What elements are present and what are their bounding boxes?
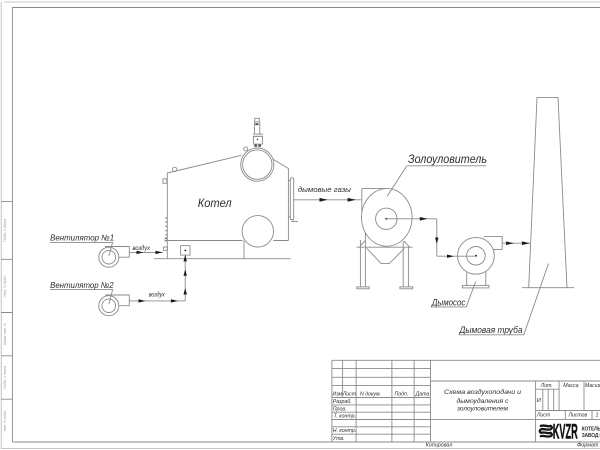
svg-text:Формат А3: Формат А3	[577, 443, 600, 449]
svg-text:КОТЕЛЬНЫЙ: КОТЕЛЬНЫЙ	[582, 425, 600, 433]
svg-text:Масса: Масса	[563, 383, 578, 389]
svg-text:Копировал: Копировал	[426, 443, 453, 449]
svg-text:Вентилятор №1: Вентилятор №1	[50, 233, 114, 243]
svg-text:Листов: Листов	[567, 413, 587, 419]
svg-text:Н. контр.: Н. контр.	[333, 428, 356, 434]
svg-text:Изм: Изм	[332, 392, 342, 398]
svg-text:N докум.: N докум.	[360, 392, 381, 398]
svg-text:дымовые газы: дымовые газы	[298, 185, 352, 194]
svg-text:Инв. N дубл.: Инв. N дубл.	[3, 275, 7, 296]
svg-text:Инв. N подл.: Инв. N подл.	[3, 410, 7, 432]
svg-text:Пров.: Пров.	[333, 406, 347, 412]
svg-text:дымоудаления с: дымоудаления с	[457, 397, 510, 405]
svg-text:Схема воздухоподачи и: Схема воздухоподачи и	[444, 388, 521, 396]
svg-text:Взам. инв. N: Взам. инв. N	[3, 323, 7, 345]
svg-text:Подп. и дата: Подп. и дата	[3, 366, 7, 389]
svg-text:Вентилятор №2: Вентилятор №2	[50, 280, 114, 290]
svg-text:Лист: Лист	[536, 413, 551, 419]
svg-text:Золоуловитель: Золоуловитель	[408, 154, 487, 166]
svg-text:Дымовая труба: Дымовая труба	[459, 325, 523, 335]
svg-text:Утв.: Утв.	[333, 436, 345, 442]
svg-text:KVZR: KVZR	[553, 421, 578, 444]
svg-text:ЗАВОД №1: ЗАВОД №1	[582, 433, 600, 439]
svg-text:Разраб.: Разраб.	[333, 399, 352, 405]
svg-text:Дата: Дата	[415, 392, 430, 398]
svg-text:Подп. и дата: Подп. и дата	[3, 219, 7, 242]
svg-text:Масштаб: Масштаб	[585, 383, 600, 389]
svg-text:Лит.: Лит.	[540, 383, 553, 389]
svg-text:Подп.: Подп.	[394, 392, 408, 398]
svg-text:Т. контр.: Т. контр.	[334, 413, 356, 419]
svg-text:воздух: воздух	[133, 244, 151, 252]
svg-text:Лист: Лист	[342, 392, 357, 398]
svg-text:Котел: Котел	[198, 198, 232, 210]
svg-text:воздух: воздух	[149, 291, 165, 299]
svg-text:1: 1	[596, 413, 599, 419]
svg-text:золоуловителем: золоуловителем	[456, 406, 508, 413]
svg-text:Дымосос: Дымосос	[431, 297, 466, 307]
